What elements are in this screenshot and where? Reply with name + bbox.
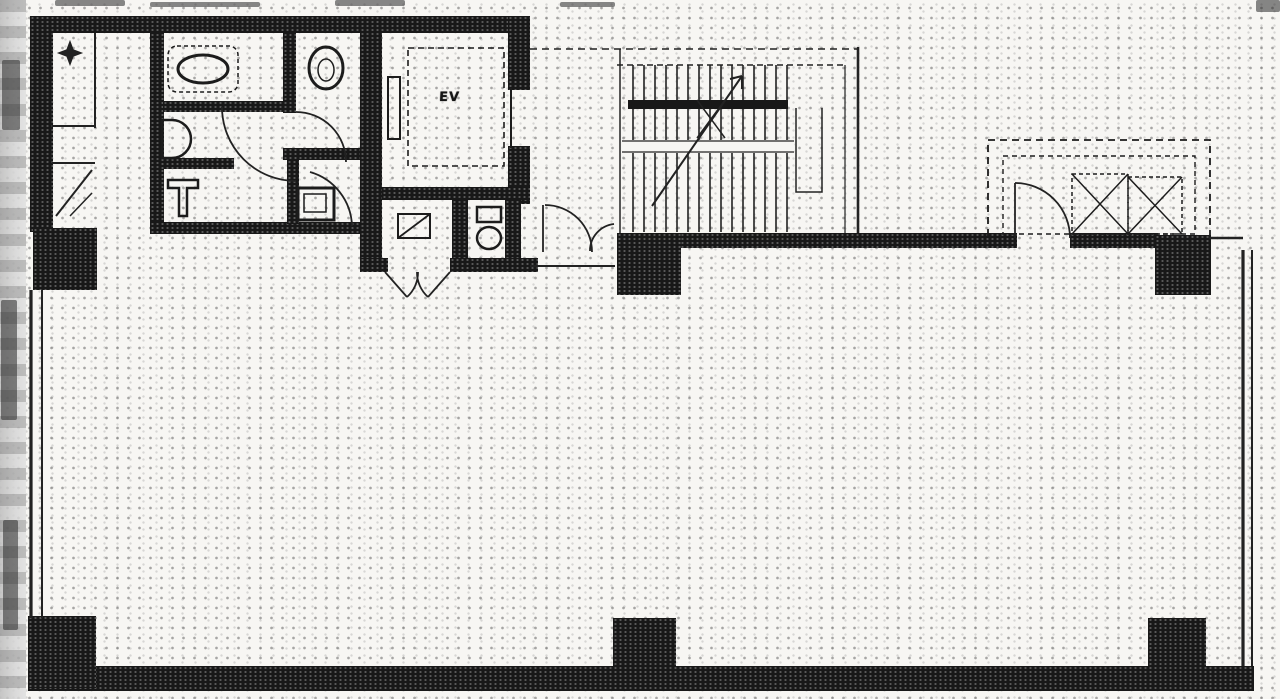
- shaft-box-2-cross-icon: [1128, 177, 1182, 234]
- toilet-bowl-inner: [318, 59, 334, 81]
- wc-bowl: [477, 227, 501, 249]
- machine-room-outer: [988, 140, 1210, 236]
- machine-room-inner: [1003, 156, 1195, 234]
- toilet-fixture: [309, 47, 343, 89]
- door-arc-machine-room: [1015, 183, 1070, 238]
- stair-landing-rail: [796, 108, 822, 192]
- double-door-arcs: [407, 272, 428, 297]
- staircase: [530, 47, 858, 233]
- urinal-fixture: [162, 120, 191, 158]
- elevator-counterweight: [388, 77, 400, 139]
- sink-fixture: [168, 180, 198, 216]
- shaft-box-1-cross-icon: [1072, 174, 1128, 234]
- floor-plan: EV: [0, 0, 1280, 699]
- door-arc-restroom-right: [296, 112, 346, 162]
- door-arc-restroom-lower: [310, 172, 352, 226]
- plan-linework: [0, 0, 1280, 699]
- toilet-fixture: [178, 55, 228, 83]
- door-swings: [222, 107, 1070, 297]
- stair-stringer: [628, 100, 788, 109]
- service-room-fixtures: [398, 207, 501, 249]
- door-arc-vestibule: [545, 205, 592, 252]
- window-wall-right: [1209, 238, 1252, 666]
- slop-sink-inner: [304, 194, 326, 212]
- restroom-fixtures: [162, 46, 343, 220]
- machine-room-dashed: [988, 140, 1210, 236]
- fan-symbol-icon: [59, 42, 81, 64]
- wc-tank: [477, 207, 501, 222]
- door-arc-restroom-main: [222, 107, 296, 181]
- stair-treads-lower: [633, 153, 787, 232]
- stair-landing: [622, 141, 794, 152]
- elevator-label: EV: [439, 90, 474, 108]
- door-arc-vestibule-small: [590, 224, 614, 251]
- left-service-rooms: [52, 33, 95, 216]
- window-wall-left: [31, 290, 42, 618]
